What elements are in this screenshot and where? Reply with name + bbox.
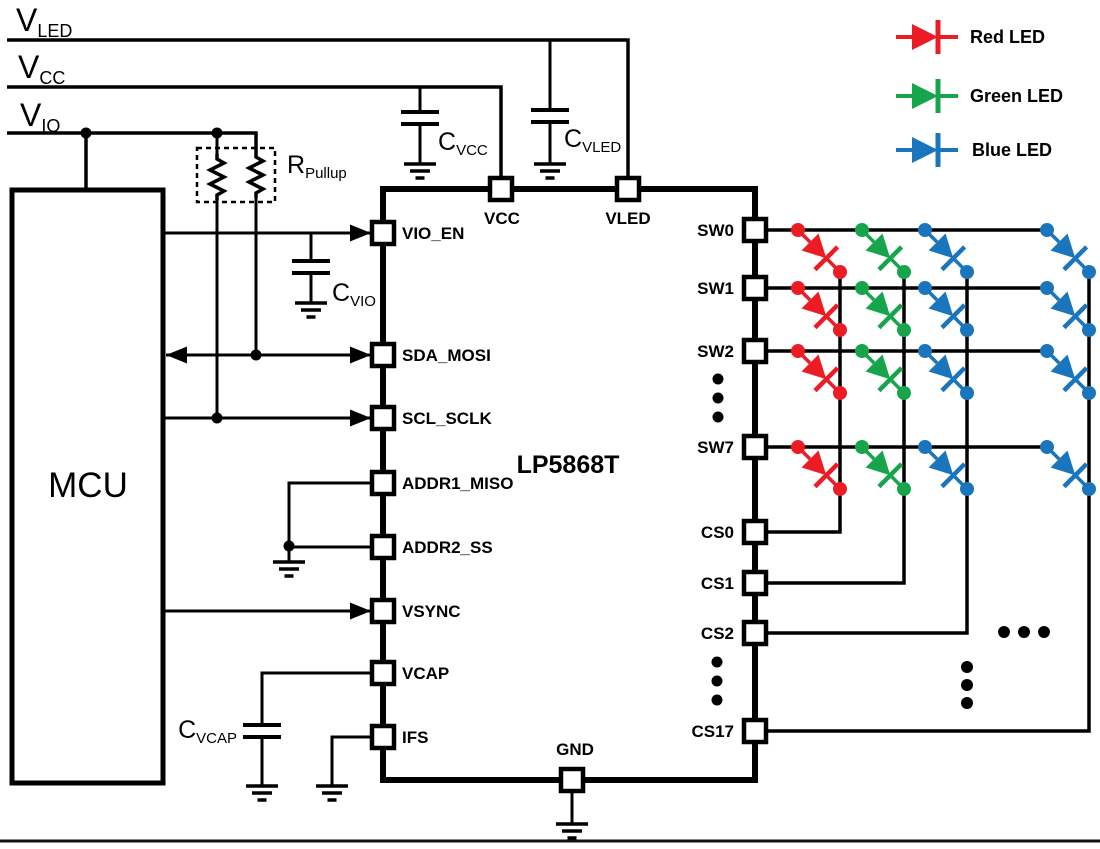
- addr1-wire: [289, 483, 372, 546]
- pin-vcc: [490, 178, 512, 200]
- arrow-icon: [350, 347, 371, 364]
- arrow-icon: [350, 225, 371, 242]
- ground-icon: [316, 786, 348, 800]
- arrow-icon: [350, 410, 371, 427]
- arrow-icon: [166, 347, 187, 364]
- vcc-rail-label: VCC: [18, 51, 65, 87]
- led-legend: [896, 20, 958, 167]
- pin-label-cs0: CS0: [654, 524, 734, 541]
- green-led-sw0-icon: [846, 214, 921, 289]
- ground-icon: [556, 824, 588, 838]
- ifs-wire: [332, 737, 372, 786]
- resistor-icon: [249, 152, 263, 198]
- pin-sw2: [744, 340, 766, 362]
- legend-label-green: Green LED: [970, 87, 1063, 105]
- pin-label-sw1: SW1: [654, 280, 734, 297]
- vio-rail-label: VIO: [20, 99, 60, 135]
- addr2-wire: [289, 547, 372, 562]
- pin-scl-sclk: [372, 407, 394, 429]
- green-led-sw7-icon: [846, 431, 921, 506]
- c-vio-label: CVIO: [332, 281, 376, 309]
- pin-vcap: [372, 662, 394, 684]
- pin-cs2: [744, 622, 766, 644]
- c-vled-label: CVLED: [564, 127, 621, 155]
- pin-label-scl-sclk: SCL_SCLK: [402, 410, 492, 427]
- pin-label-ifs: IFS: [402, 729, 428, 746]
- green-led-column-wire: [766, 272, 904, 583]
- vled-rail-label: VLED: [16, 4, 72, 40]
- led-matrix: [766, 214, 1100, 731]
- pin-gnd: [561, 769, 583, 791]
- ground-icon: [273, 562, 305, 576]
- pin-vled: [617, 178, 639, 200]
- c-vcc-label: CVCC: [438, 130, 488, 158]
- pin-ifs: [372, 726, 394, 748]
- c-vcap-label: CVCAP: [165, 718, 237, 746]
- capacitor-icon: [531, 110, 569, 122]
- pin-label-vsync: VSYNC: [402, 603, 461, 620]
- pin-vsync: [372, 600, 394, 622]
- pin-label-addr2-ss: ADDR2_SS: [402, 539, 493, 556]
- red-led-sw0-icon: [782, 214, 857, 289]
- pin-label-cs1: CS1: [654, 575, 734, 592]
- legend-green-led-icon: [896, 79, 958, 113]
- pullup-resistors: [197, 133, 275, 418]
- pin-cs17: [744, 720, 766, 742]
- red-led-sw2-icon: [782, 335, 857, 410]
- pin-label-vcap: VCAP: [402, 665, 449, 682]
- legend-blue-led-icon: [896, 133, 958, 167]
- ground-icon: [246, 786, 278, 800]
- pin-label-addr1-miso: ADDR1_MISO: [402, 475, 513, 492]
- capacitor-icon: [401, 112, 439, 124]
- pin-sw1: [744, 277, 766, 299]
- pin-label-sw2: SW2: [654, 343, 734, 360]
- pin-sw7: [744, 436, 766, 458]
- blue-led-sw0-icon: [909, 214, 984, 289]
- pin-label-cs2: CS2: [654, 625, 734, 642]
- pin-addr1-miso: [372, 472, 394, 494]
- mcu-label: MCU: [38, 468, 138, 503]
- pin-vio-en: [372, 222, 394, 244]
- pin-cs0: [744, 521, 766, 543]
- ic-name-label: LP5868T: [503, 453, 633, 478]
- pin-sw0: [744, 219, 766, 241]
- legend-red-led-icon: [896, 20, 958, 54]
- schematic-canvas: VLED VCC VIO RPullup CVCC CVLED CVIO CVC…: [0, 0, 1100, 849]
- arrow-icon: [350, 603, 371, 620]
- capacitor-icon: [243, 725, 281, 737]
- resistor-icon: [210, 154, 224, 200]
- green-led-sw1-icon: [846, 272, 921, 347]
- pin-label-sw0: SW0: [654, 222, 734, 239]
- pin-label-vcc: VCC: [467, 210, 537, 227]
- pin-sda-mosi: [372, 344, 394, 366]
- ground-icon: [404, 164, 436, 178]
- ground-icon: [295, 303, 327, 317]
- blue-led-sw2-icon: [909, 335, 984, 410]
- pin-label-gnd: GND: [540, 741, 610, 758]
- pin-cs1: [744, 572, 766, 594]
- red-led-sw1-icon: [782, 272, 857, 347]
- blue-led-column-wire: [766, 272, 1089, 731]
- r-pullup-label: RPullup: [287, 153, 347, 181]
- capacitor-icon: [292, 261, 330, 273]
- green-led-sw2-icon: [846, 335, 921, 410]
- pin-label-sda-mosi: SDA_MOSI: [402, 347, 491, 364]
- blue-led-sw0-icon: [1031, 214, 1100, 289]
- ground-icon: [534, 164, 566, 178]
- legend-label-red: Red LED: [970, 28, 1045, 46]
- blue-led-sw1-icon: [909, 272, 984, 347]
- pin-label-vio-en: VIO_EN: [402, 225, 464, 242]
- blue-led-sw7-icon: [909, 431, 984, 506]
- pin-label-cs17: CS17: [654, 723, 734, 740]
- pin-addr2-ss: [372, 536, 394, 558]
- pin-label-sw7: SW7: [654, 439, 734, 456]
- red-led-sw7-icon: [782, 431, 857, 506]
- legend-label-blue: Blue LED: [972, 141, 1052, 159]
- pin-label-vled: VLED: [593, 210, 663, 227]
